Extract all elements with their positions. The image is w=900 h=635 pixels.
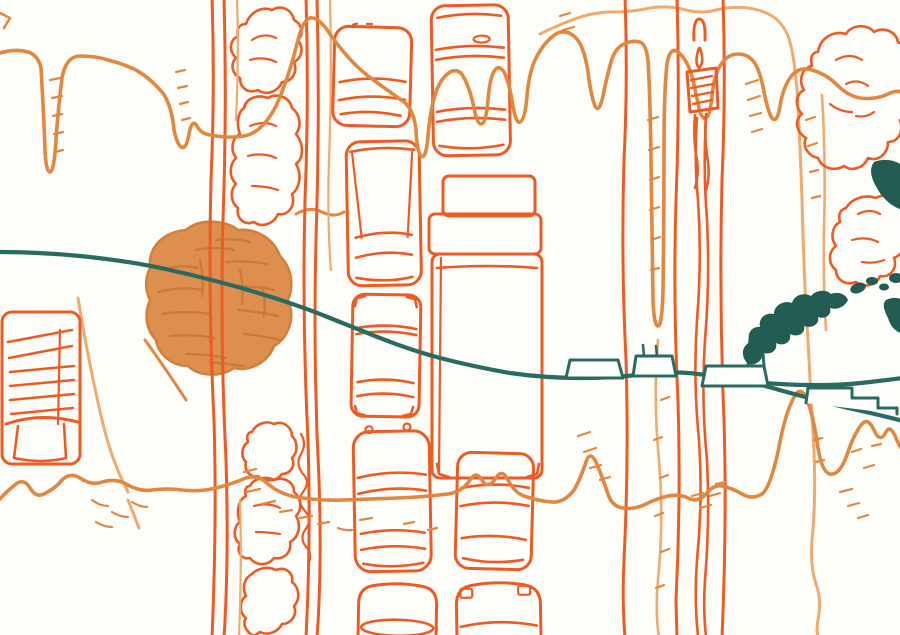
semi-truck — [429, 176, 542, 478]
ink-droplet — [591, 142, 596, 154]
median-tree-1 — [231, 8, 302, 93]
factory-building-2 — [633, 342, 676, 376]
big-scribble-tree — [797, 26, 900, 285]
bottom-contour-line — [0, 391, 900, 508]
teal-horizon — [0, 160, 900, 421]
traffic-queue — [332, 23, 437, 635]
hatched-road-sign — [687, 19, 718, 190]
smoke-upper-right-mass — [871, 160, 900, 210]
car-3 — [351, 294, 421, 417]
parked-truck-left — [2, 312, 80, 464]
factory-building-1 — [566, 360, 623, 378]
car-9 — [456, 582, 541, 635]
median-tree-5 — [241, 568, 299, 635]
median-tree-2 — [231, 96, 302, 225]
smoke-right-edge-mass — [884, 298, 900, 334]
ink-droplet — [60, 194, 65, 205]
car-8 — [455, 452, 534, 570]
big-scribble-tree-lower-clump — [830, 196, 900, 286]
top-drip-contour-line — [0, 18, 900, 326]
car-2 — [346, 141, 422, 286]
median-tree-3 — [242, 422, 296, 480]
right-road-lines — [623, 0, 725, 635]
sketch-canvas — [0, 0, 900, 635]
smoke-plume — [698, 160, 900, 381]
marker-sketch-artwork — [0, 0, 900, 635]
car-1 — [332, 23, 412, 127]
car-5 — [358, 583, 437, 635]
median-tree-4 — [235, 478, 301, 564]
